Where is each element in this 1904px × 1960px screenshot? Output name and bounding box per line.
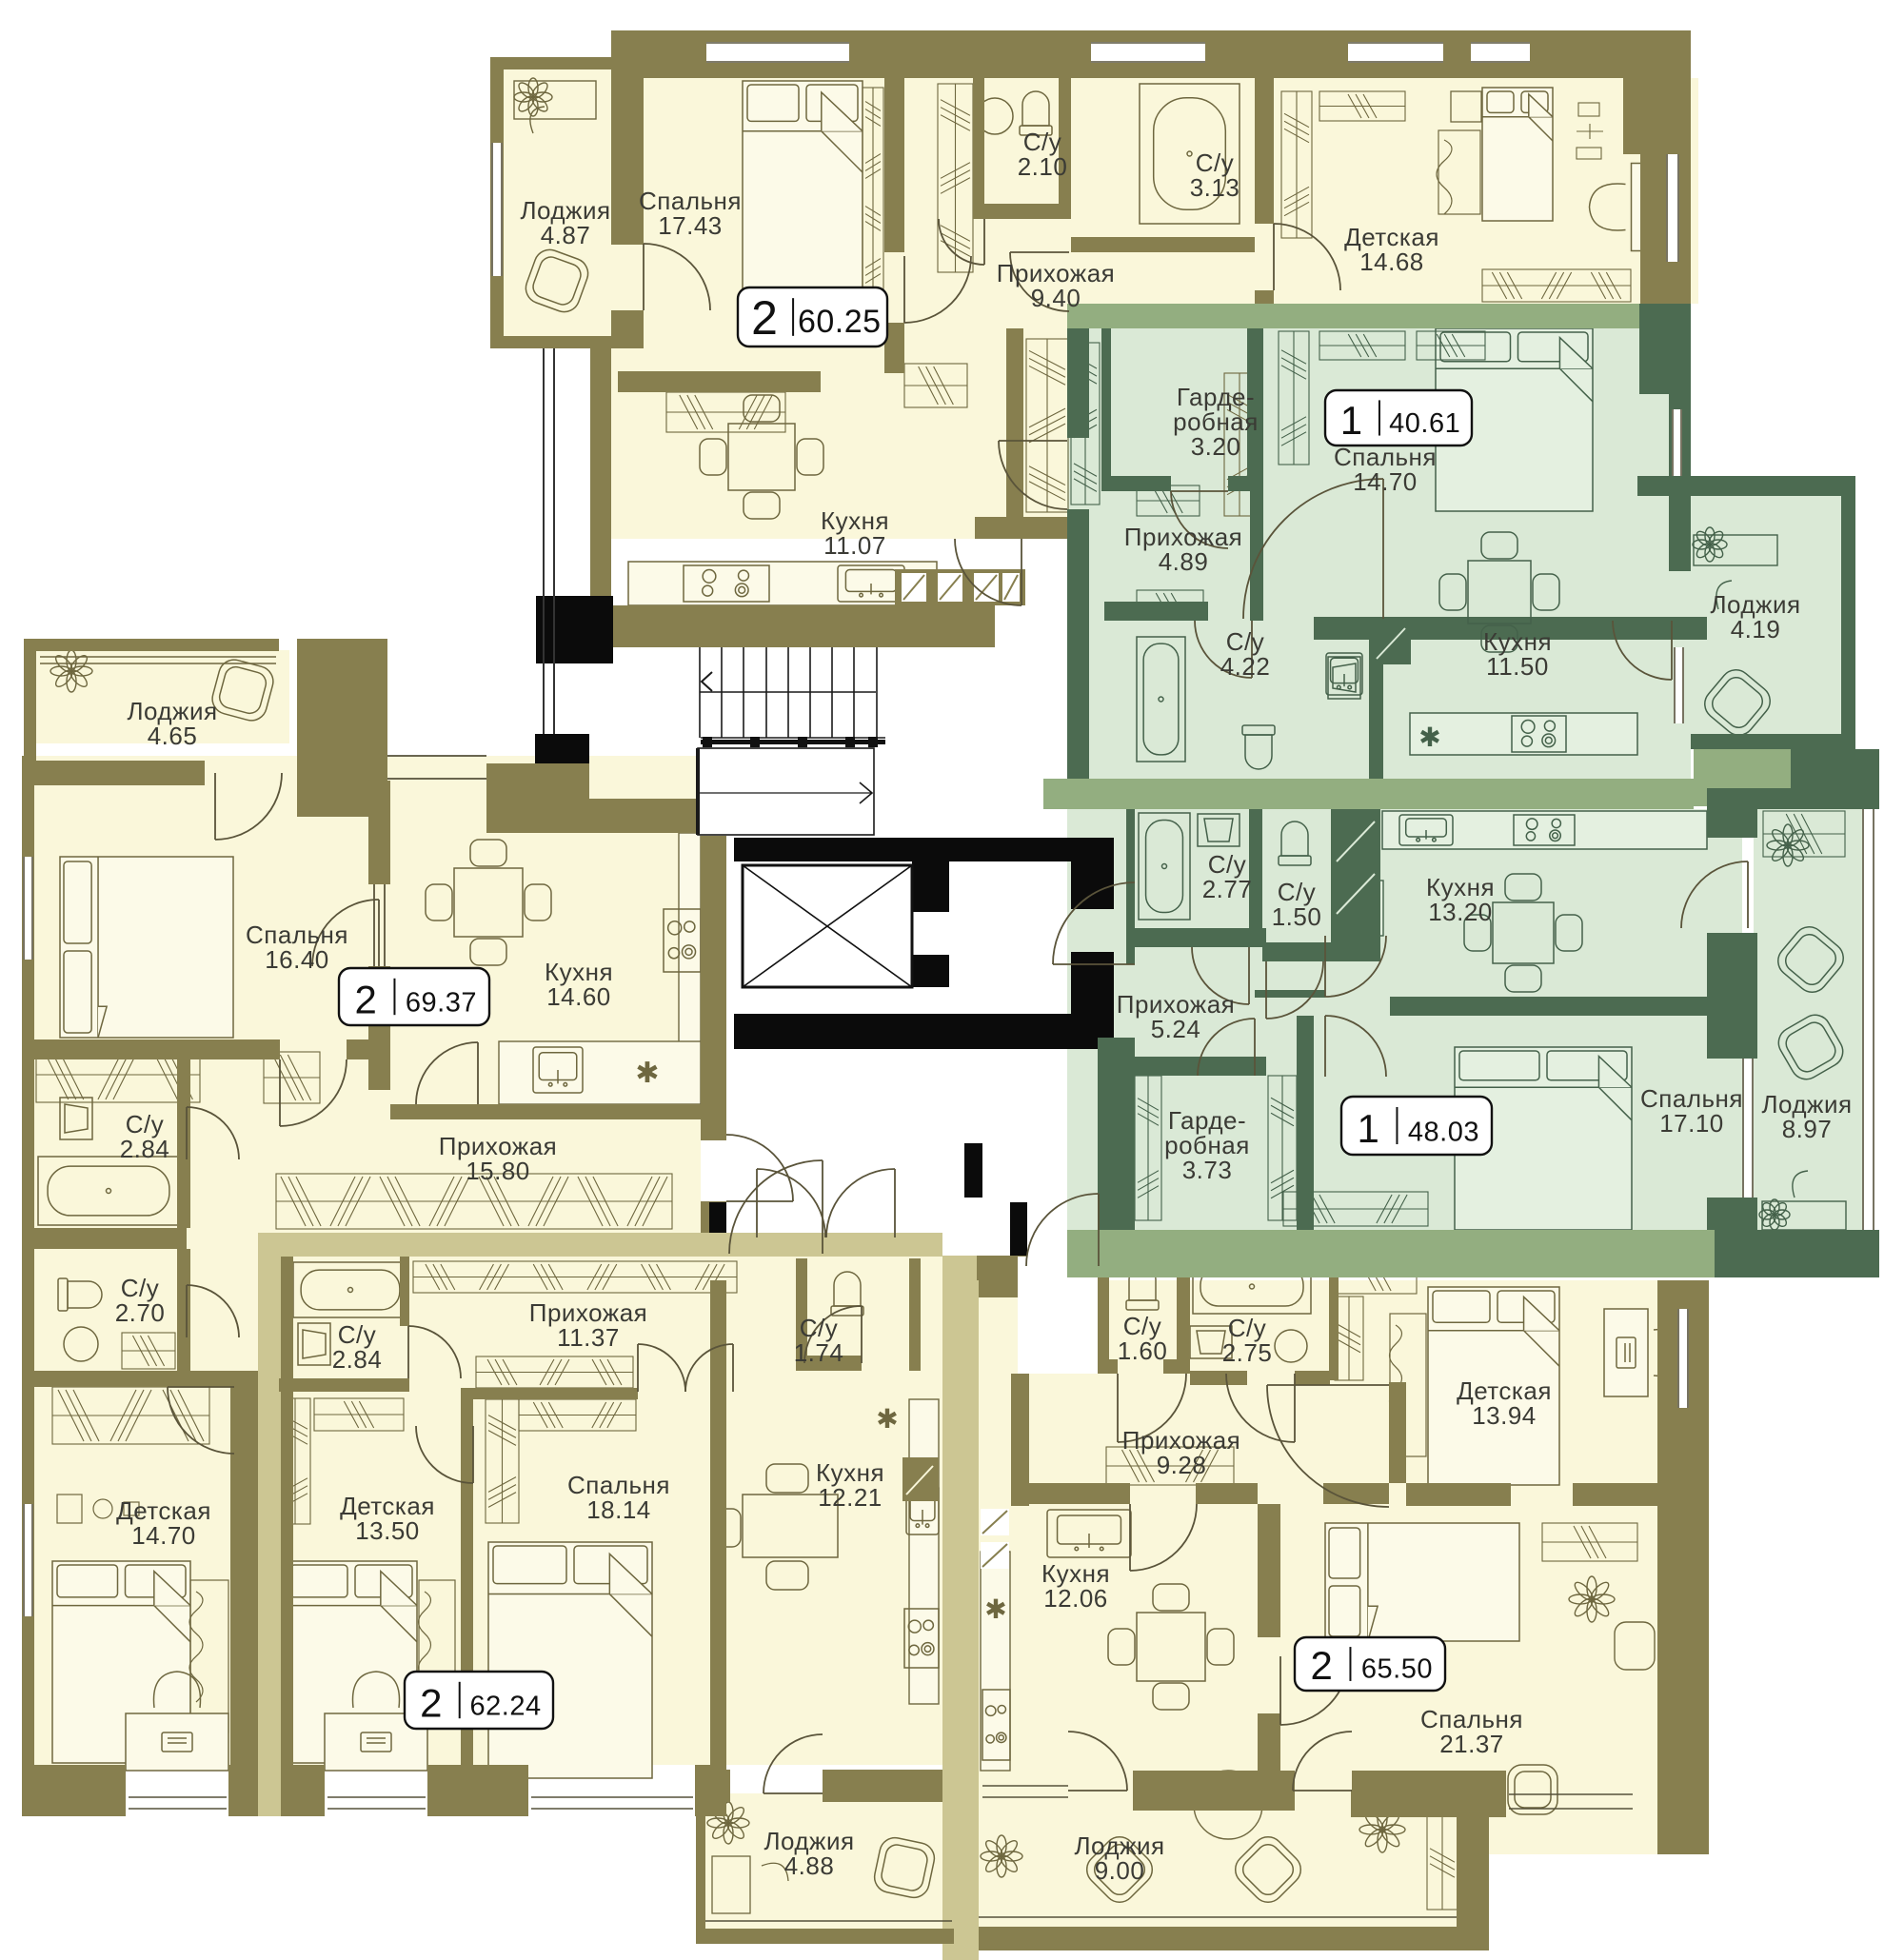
svg-text:3.20: 3.20 (1191, 432, 1241, 461)
svg-text:2: 2 (355, 977, 378, 1021)
svg-text:2: 2 (1311, 1643, 1334, 1688)
svg-text:5.24: 5.24 (1151, 1015, 1201, 1043)
svg-text:69.37: 69.37 (406, 988, 477, 1019)
svg-text:3.13: 3.13 (1190, 173, 1240, 202)
svg-text:14.70: 14.70 (1353, 467, 1418, 496)
svg-text:8.97: 8.97 (1782, 1115, 1833, 1143)
svg-text:11.37: 11.37 (557, 1323, 620, 1352)
svg-text:62.24: 62.24 (470, 1692, 542, 1722)
svg-text:60.25: 60.25 (798, 304, 882, 340)
svg-text:16.40: 16.40 (265, 945, 329, 974)
svg-text:4.87: 4.87 (541, 221, 591, 249)
svg-text:1: 1 (1358, 1106, 1380, 1151)
svg-text:2: 2 (751, 291, 778, 345)
svg-text:2: 2 (420, 1680, 443, 1725)
svg-text:48.03: 48.03 (1408, 1117, 1479, 1147)
svg-text:3.73: 3.73 (1182, 1156, 1233, 1184)
svg-text:2.84: 2.84 (120, 1135, 170, 1163)
svg-text:18.14: 18.14 (586, 1495, 651, 1524)
svg-text:2.77: 2.77 (1202, 875, 1253, 903)
svg-text:1: 1 (1340, 398, 1363, 443)
svg-text:4.88: 4.88 (784, 1851, 835, 1880)
svg-text:11.50: 11.50 (1486, 652, 1549, 681)
svg-text:2.75: 2.75 (1222, 1338, 1273, 1367)
svg-text:✱: ✱ (984, 1595, 1006, 1625)
svg-text:40.61: 40.61 (1389, 408, 1460, 439)
svg-text:12.21: 12.21 (818, 1483, 883, 1512)
svg-text:9.00: 9.00 (1095, 1856, 1145, 1885)
svg-text:17.43: 17.43 (658, 211, 723, 240)
svg-text:4.22: 4.22 (1220, 652, 1271, 681)
svg-text:14.60: 14.60 (546, 982, 611, 1011)
svg-text:✱: ✱ (1418, 723, 1440, 753)
svg-text:65.50: 65.50 (1361, 1654, 1433, 1685)
svg-text:2.70: 2.70 (115, 1298, 166, 1327)
svg-text:21.37: 21.37 (1439, 1730, 1504, 1758)
svg-text:4.65: 4.65 (148, 722, 198, 750)
svg-text:15.80: 15.80 (466, 1157, 530, 1185)
svg-text:11.07: 11.07 (823, 531, 886, 560)
svg-text:13.50: 13.50 (355, 1516, 420, 1545)
svg-text:9.28: 9.28 (1157, 1451, 1207, 1479)
svg-text:✱: ✱ (635, 1058, 659, 1089)
svg-text:2.84: 2.84 (332, 1345, 383, 1374)
svg-text:12.06: 12.06 (1043, 1584, 1108, 1613)
svg-text:13.94: 13.94 (1472, 1401, 1537, 1430)
svg-text:1.60: 1.60 (1118, 1336, 1168, 1365)
svg-text:17.10: 17.10 (1659, 1109, 1724, 1138)
svg-text:2.10: 2.10 (1018, 152, 1068, 181)
svg-text:4.19: 4.19 (1731, 615, 1781, 643)
svg-text:14.68: 14.68 (1359, 247, 1424, 276)
svg-text:1.74: 1.74 (794, 1338, 844, 1367)
svg-text:1.50: 1.50 (1272, 902, 1322, 931)
svg-text:13.20: 13.20 (1428, 898, 1493, 926)
svg-text:14.70: 14.70 (131, 1521, 196, 1550)
svg-text:9.40: 9.40 (1031, 284, 1081, 312)
svg-text:4.89: 4.89 (1159, 547, 1209, 576)
svg-text:✱: ✱ (876, 1405, 898, 1435)
